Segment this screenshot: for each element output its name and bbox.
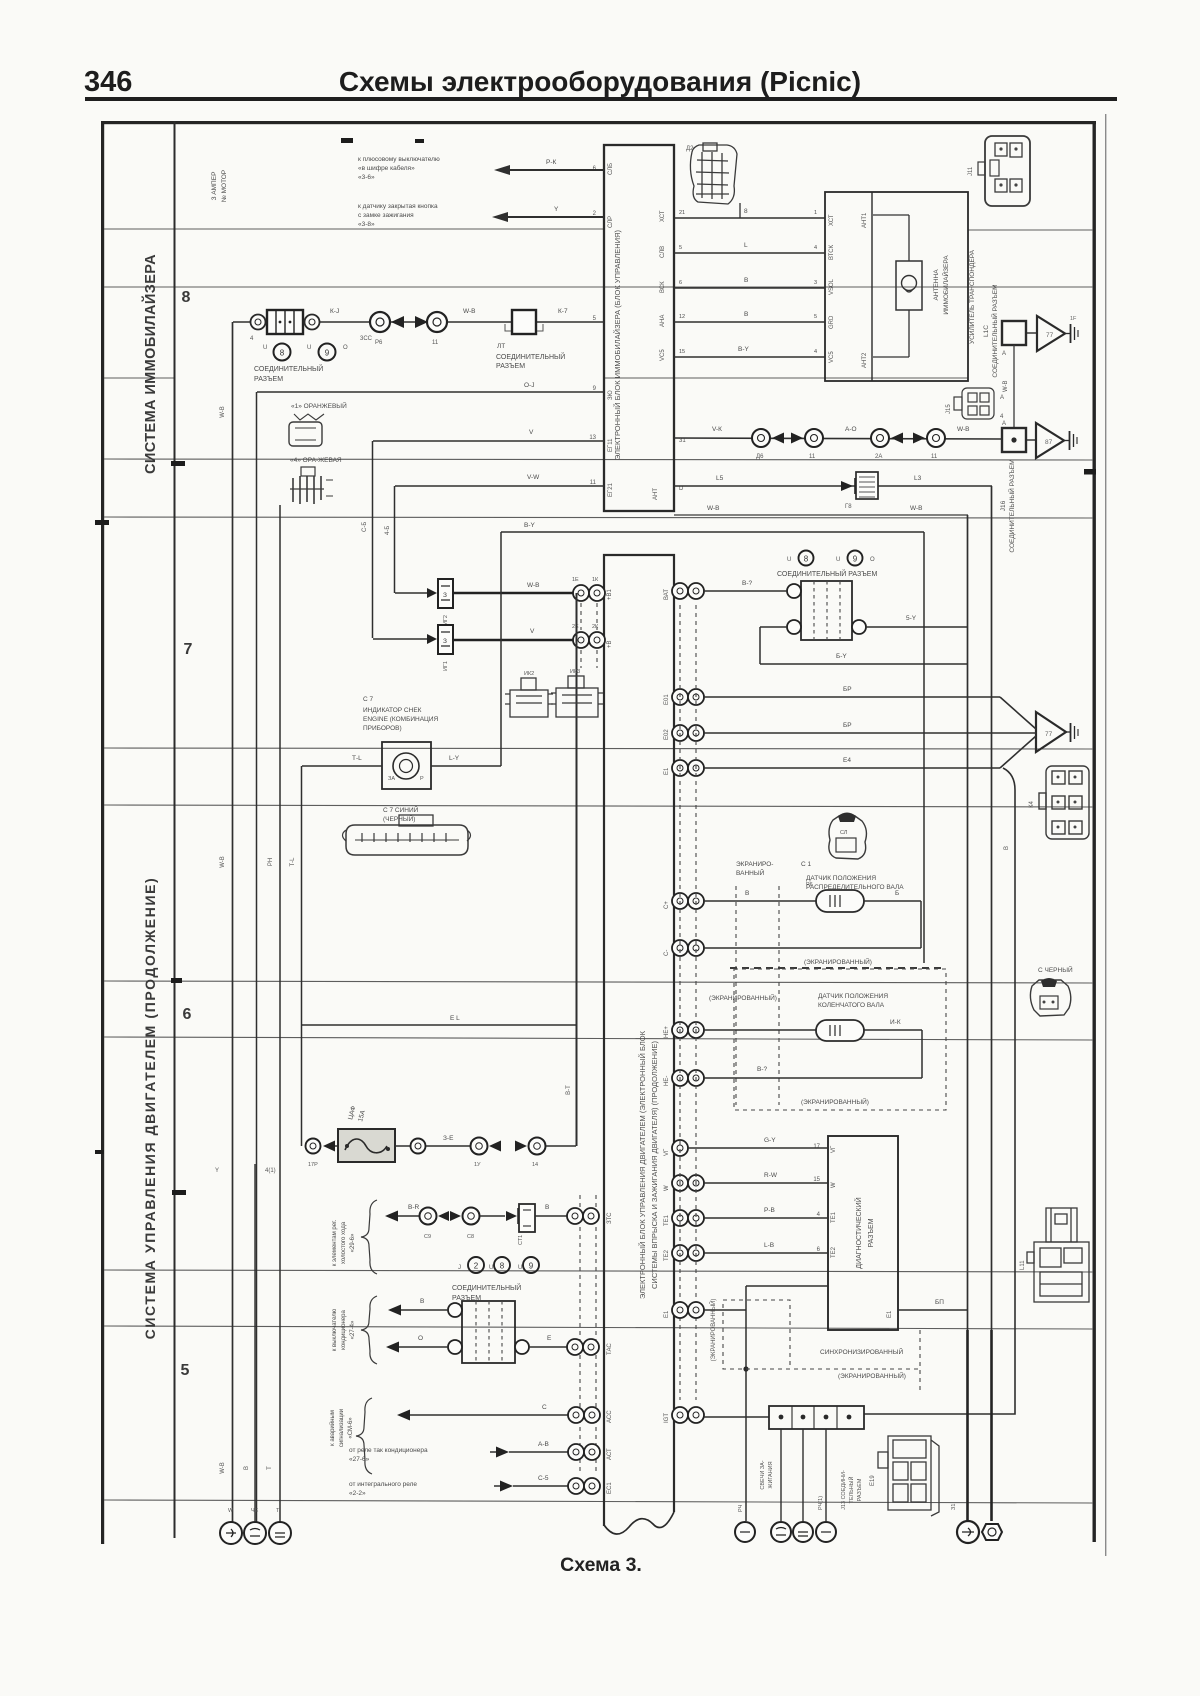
svg-text:W-В: W-В [527,582,540,589]
svg-text:Р: Р [420,776,424,782]
svg-text:U: U [787,557,791,563]
svg-text:№ МОТОР: № МОТОР [221,170,228,202]
svg-text:ПРИБОРОВ): ПРИБОРОВ) [363,725,402,732]
svg-text:ТАС: ТАС [607,1343,613,1355]
svg-text:8: 8 [280,349,285,358]
svg-text:В: В [244,1466,250,1470]
svg-text:ЕС1: ЕС1 [607,1482,613,1494]
svg-text:РАЗЪЕМ: РАЗЪЕМ [496,363,525,370]
svg-text:6: 6 [679,280,682,286]
svg-text:W-B: W-B [220,406,226,418]
svg-text:АНТЕННА: АНТЕННА [933,269,940,301]
svg-text:ЕГ11: ЕГ11 [608,438,614,452]
svg-text:к элементам рег.: к элементам рег. [332,1219,338,1266]
svg-text:L: L [744,242,748,249]
svg-text:И-К: И-К [890,1019,901,1026]
svg-text:ТЕЛЬНЫЙ: ТЕЛЬНЫЙ [847,1476,855,1503]
svg-text:АСС: АСС [607,1410,613,1423]
svg-text:2А: 2А [875,454,882,460]
svg-text:ВАННЫЙ: ВАННЫЙ [736,868,765,877]
svg-text:Р-В: Р-В [764,1207,775,1214]
svg-text:З: З [443,638,447,645]
svg-text:О: О [870,557,875,563]
svg-text:АСТ: АСТ [607,1448,613,1460]
svg-text:РАЗЪЕМ: РАЗЪЕМ [254,376,283,383]
svg-text:(ЭКРАНИРОВАННЫЙ): (ЭКРАНИРОВАННЫЙ) [801,1097,869,1106]
svg-text:V-W: V-W [527,474,540,481]
svg-text:К-J: К-J [330,308,339,315]
svg-text:ДИАГНОСТИЧЕСКИЙ: ДИАГНОСТИЧЕСКИЙ [854,1197,863,1268]
svg-text:J15: J15 [946,404,952,414]
svg-text:СЛР: СЛР [608,216,614,228]
svg-text:77: 77 [1046,332,1054,339]
svg-text:О: О [343,345,348,351]
svg-text:Y: Y [554,206,559,213]
svg-text:W-В: W-В [707,505,720,512]
svg-text:ИГ2: ИГ2 [443,615,449,625]
svg-text:к плюсовому выключателю: к плюсовому выключателю [358,156,440,163]
svg-text:ИК2: ИК2 [524,671,534,677]
svg-text:О: О [418,1335,423,1342]
svg-text:13: 13 [589,435,596,441]
svg-text:ВТСК: ВТСК [829,244,835,260]
svg-text:БП: БП [935,1299,944,1306]
svg-text:Е02: Е02 [664,729,670,740]
svg-text:СОЕДИНИТЕЛЬНЫЙ: СОЕДИНИТЕЛЬНЫЙ [496,352,565,361]
svg-text:З: З [443,592,447,599]
svg-text:ТЕ2: ТЕ2 [831,1246,837,1258]
svg-text:В-?: В-? [742,580,753,587]
svg-text:W-B: W-B [220,1462,226,1474]
svg-text:12: 12 [679,314,685,320]
svg-text:77: 77 [1045,731,1053,738]
svg-text:L5: L5 [716,475,724,482]
svg-text:СИСТЕМА УПРАВЛЕНИЯ ДВИГАТЕЛЕМ: СИСТЕМА УПРАВЛЕНИЯ ДВИГАТЕЛЕМ (ПРОДОЛЖЕН… [142,877,158,1340]
svg-text:к аварийным: к аварийным [329,1410,336,1446]
svg-text:к датчику закрытая кнопка: к датчику закрытая кнопка [358,203,438,210]
svg-text:ИНДИКАТОР СНЕК: ИНДИКАТОР СНЕК [363,707,422,714]
svg-text:С 1: С 1 [801,861,812,868]
svg-text:11: 11 [809,454,816,460]
svg-text:W-B: W-B [1003,380,1009,392]
svg-text:Т: Т [267,1466,273,1470]
svg-text:5: 5 [679,245,682,251]
svg-text:4(1): 4(1) [265,1168,276,1174]
svg-text:J11: J11 [968,166,974,176]
svg-text:НЕ+: НЕ+ [664,1026,670,1038]
svg-text:21: 21 [679,210,685,216]
svg-text:от реле так кондиционера: от реле так кондиционера [349,1447,428,1454]
svg-text:3СС: 3СС [360,336,373,342]
svg-text:VC5: VC5 [829,351,835,363]
svg-text:В-Y: В-Y [524,522,536,529]
svg-text:С-: С- [664,950,670,956]
svg-text:ЗА: ЗА [388,776,395,782]
svg-text:ТЕ2: ТЕ2 [664,1249,670,1261]
svg-text:(ЭКРАНИРОВАННЫЙ): (ЭКРАНИРОВАННЫЙ) [838,1371,906,1380]
svg-text:4: 4 [814,245,817,251]
svg-text:1У: 1У [474,1162,481,1168]
svg-text:Б-Y: Б-Y [836,653,847,660]
svg-text:А: А [1000,395,1004,401]
svg-text:1К: 1К [592,577,599,583]
svg-text:СВЕЧИ ЗА-: СВЕЧИ ЗА- [760,1460,766,1489]
svg-text:АНТ1: АНТ1 [862,212,868,228]
svg-text:С ЧЕРНЫЙ: С ЧЕРНЫЙ [1038,965,1073,974]
svg-text:J: J [458,1265,461,1271]
svg-text:ТЕ1: ТЕ1 [664,1214,670,1226]
svg-text:7: 7 [184,641,193,658]
svg-text:С: С [542,1404,547,1411]
svg-text:О-J: О-J [524,382,534,389]
svg-text:W: W [831,1182,837,1188]
svg-text:ИММОБИЛАЙЗЕРА: ИММОБИЛАЙЗЕРА [941,255,950,315]
svg-text:РЧ(1): РЧ(1) [818,1496,824,1510]
svg-text:«2-2»: «2-2» [349,1490,366,1497]
svg-text:«3-6»: «3-6» [358,174,375,181]
svg-text:Р6: Р6 [375,340,383,346]
svg-text:ENGINE (КОМБИНАЦИЯ: ENGINE (КОМБИНАЦИЯ [363,716,439,723]
svg-text:U: U [307,345,311,351]
svg-text:L11: L11 [1020,1260,1026,1270]
svg-text:В: В [420,1298,424,1305]
svg-text:С 7 СИНИЙ: С 7 СИНИЙ [383,805,419,814]
svg-text:IGТ: IGТ [664,1413,670,1423]
svg-text:17Р: 17Р [308,1162,318,1168]
svg-text:9: 9 [529,1262,534,1271]
svg-text:Д2: Д2 [686,146,694,152]
svg-text:VГ: VГ [831,1145,837,1153]
svg-text:8: 8 [804,555,809,564]
svg-text:U: U [836,557,840,563]
svg-text:U: U [263,345,267,351]
svg-text:холостого хода: холостого хода [341,1221,347,1264]
svg-text:с замке зажигания: с замке зажигания [358,212,414,219]
svg-text:1: 1 [814,210,817,216]
svg-text:ЭКРАНИРО-: ЭКРАНИРО- [736,861,773,868]
svg-text:В: В [744,277,748,284]
svg-text:8: 8 [182,289,191,306]
svg-text:ДАТЧИК ПОЛОЖЕНИЯ: ДАТЧИК ПОЛОЖЕНИЯ [818,993,888,1000]
svg-text:В-?: В-? [757,1066,768,1073]
svg-text:С+: С+ [664,901,670,909]
svg-text:«СМ-6»: «СМ-6» [348,1417,354,1439]
svg-text:СТ1: СТ1 [518,1235,524,1245]
svg-text:11: 11 [432,340,439,346]
svg-text:15: 15 [813,1177,820,1183]
svg-text:ЖИГАНИЯ: ЖИГАНИЯ [768,1461,774,1488]
svg-text:4: 4 [814,349,817,355]
svg-text:В: В [545,1204,549,1211]
svg-text:Е01: Е01 [664,694,670,705]
svg-text:ЭЛЕКТРОННЫЙ БЛОК ИММОБИЛАЙЗЕРА: ЭЛЕКТРОННЫЙ БЛОК ИММОБИЛАЙЗЕРА (БЛОК УПР… [613,229,622,460]
svg-text:87: 87 [1045,439,1053,446]
svg-text:L3: L3 [914,475,922,482]
svg-text:G-Y: G-Y [764,1137,776,1144]
svg-text:VSOL: VSOL [829,278,835,295]
svg-text:5: 5 [181,1362,190,1379]
svg-text:11: 11 [590,480,597,486]
svg-text:Б: Б [895,890,899,897]
svg-text:СЛБ: СЛБ [608,163,614,175]
svg-text:J16: J16 [1000,500,1007,511]
svg-text:V-К: V-К [712,426,722,433]
svg-text:РЧ: РЧ [738,1504,744,1512]
svg-text:РАЗЪЕМ: РАЗЪЕМ [857,1478,863,1501]
svg-text:ХСТ: ХСТ [660,210,666,222]
svg-text:9: 9 [325,349,330,358]
svg-text:СИСТЕМА ИММОБИЛАЙЗЕРА: СИСТЕМА ИММОБИЛАЙЗЕРА [141,254,159,474]
svg-text:В: В [744,311,748,318]
svg-text:СОЕДИНИТЕЛЬНЫЙ РАЗЪЕМ: СОЕДИНИТЕЛЬНЫЙ РАЗЪЕМ [1007,459,1016,552]
svg-text:Р-К: Р-К [546,159,557,166]
svg-text:ВАТ: ВАТ [664,589,670,600]
svg-text:УСИЛИТЕЛЬ ТРАНСПОНДЕРА: УСИЛИТЕЛЬ ТРАНСПОНДЕРА [969,249,976,344]
svg-text:РАСПРЕДЕЛИТЕЛЬНОГО ВАЛА: РАСПРЕДЕЛИТЕЛЬНОГО ВАЛА [806,884,904,891]
svg-text:+В1: +В1 [607,588,613,600]
svg-text:W-В: W-В [463,308,476,315]
svg-text:«29-6»: «29-6» [350,1233,356,1252]
svg-text:А: А [1002,351,1006,357]
svg-text:L-Y: L-Y [449,755,460,762]
svg-text:В-Т: В-Т [566,1085,572,1095]
svg-text:Схемы электрооборудования (Pic: Схемы электрооборудования (Picnic) [339,66,861,97]
svg-text:5-Y: 5-Y [906,615,917,622]
svg-text:V: V [529,429,534,436]
svg-text:31: 31 [679,438,686,444]
svg-text:W-В: W-В [957,426,970,433]
svg-text:ДАТЧИК ПОЛОЖЕНИЯ: ДАТЧИК ПОЛОЖЕНИЯ [806,875,876,882]
svg-text:(ЭКРАНИРОВАННЫЙ): (ЭКРАНИРОВАННЫЙ) [709,1299,717,1362]
svg-text:СЛ: СЛ [840,830,848,836]
svg-text:W: W [228,1508,234,1514]
svg-text:Е1: Е1 [664,1310,670,1318]
svg-text:ЧЕ: ЧЕ [251,1508,259,1514]
svg-text:ЭЛЕКТРОННЫЙ БЛОК УПРАВЛЕНИЯ ДВ: ЭЛЕКТРОННЫЙ БЛОК УПРАВЛЕНИЯ ДВИГАТЕЛЕМ (… [638,1030,647,1299]
svg-text:«27-4»: «27-4» [350,1320,356,1339]
svg-text:ЗТС: ЗТС [607,1212,613,1224]
svg-text:U: U [518,1265,522,1271]
svg-text:ЛТ: ЛТ [497,343,505,350]
svg-text:1Е: 1Е [572,577,579,583]
svg-text:БР: БР [843,722,852,729]
svg-text:РАЗЪЕМ: РАЗЪЕМ [868,1218,875,1247]
svg-text:«27-6»: «27-6» [349,1456,370,1463]
svg-text:ВСК: ВСК [660,281,666,293]
svg-text:В-R: В-R [408,1204,420,1211]
svg-text:В: В [745,890,749,897]
svg-text:С-5: С-5 [538,1475,549,1482]
svg-text:15: 15 [679,349,685,355]
svg-text:ЗЮ: ЗЮ [608,390,614,400]
svg-text:А-В: А-В [538,1441,549,1448]
svg-text:Т-L: Т-L [352,755,362,762]
svg-text:Е1: Е1 [664,767,670,775]
svg-text:С-Б: С-Б [362,522,368,532]
svg-text:5: 5 [814,314,817,320]
svg-text:к выключателю: к выключателю [332,1308,338,1351]
svg-text:17: 17 [813,1144,820,1150]
svg-text:Схема 3.: Схема 3. [560,1554,642,1576]
svg-text:346: 346 [84,66,132,98]
svg-text:Т-L: Т-L [290,857,296,867]
svg-text:Д6: Д6 [756,454,764,460]
svg-text:W-B: W-B [220,856,226,868]
svg-text:НЕ-: НЕ- [664,1076,670,1086]
svg-text:СОЕДИНИТЕЛЬНЫЙ: СОЕДИНИТЕЛЬНЫЙ [452,1283,521,1292]
svg-text:Е L: Е L [450,1015,460,1022]
svg-text:2: 2 [474,1262,479,1271]
svg-text:от интегрального реле: от интегрального реле [349,1481,417,1488]
svg-text:Е19: Е19 [870,1475,876,1486]
svg-text:СИСТЕМЫ ВПРЫСКА И ЗАЖИГАНИЯ ДВ: СИСТЕМЫ ВПРЫСКА И ЗАЖИГАНИЯ ДВИГАТЕЛЯ) (… [650,1041,659,1289]
svg-text:СЛВ: СЛВ [660,246,666,258]
svg-text:Y: Y [215,1168,219,1174]
svg-text:З-Е: З-Е [443,1135,454,1142]
svg-text:В-Y: В-Y [738,346,750,353]
svg-text:ИГ1: ИГ1 [443,661,449,671]
svg-text:СОЕДИНИТЕЛЬНЫЙ: СОЕДИНИТЕЛЬНЫЙ [254,364,323,373]
svg-text:V: V [530,628,535,635]
svg-text:VC5: VC5 [660,349,666,361]
svg-text:сигнализации: сигнализации [339,1409,345,1447]
svg-text:А: А [1002,421,1006,427]
svg-text:ЕГ21: ЕГ21 [608,482,614,497]
svg-text:СОЕДИНИТЕЛЬНЫЙ РАЗЪЕМ: СОЕДИНИТЕЛЬНЫЙ РАЗЪЕМ [777,569,877,578]
svg-text:GRD: GRD [829,315,835,329]
svg-text:J13 СОЕДИНИ-: J13 СОЕДИНИ- [841,1470,847,1510]
svg-text:АНА: АНА [660,315,666,327]
svg-text:А-О: А-О [845,426,857,433]
svg-text:«в шифре кабеля»: «в шифре кабеля» [358,164,415,172]
svg-text:ХСТ: ХСТ [829,214,835,226]
svg-text:С 7: С 7 [363,696,374,703]
svg-text:L-В: L-В [764,1242,774,1249]
svg-text:Е1: Е1 [887,1310,893,1318]
svg-text:1F: 1F [1070,316,1077,322]
svg-text:АНТ2: АНТ2 [862,352,868,368]
svg-text:СИНХРОНИЗИРОВАННЫЙ: СИНХРОНИЗИРОВАННЫЙ [820,1347,903,1356]
svg-text:СОЕДИНИТЕЛЬНЫЙ РАЗЪЕМ: СОЕДИНИТЕЛЬНЫЙ РАЗЪЕМ [990,284,999,377]
svg-text:D: D [679,486,684,492]
svg-text:VГ: VГ [664,1148,670,1156]
svg-text:БР: БР [843,686,852,693]
svg-text:R-W: R-W [764,1172,778,1179]
svg-text:+В: +В [607,640,613,648]
svg-text:К-7: К-7 [558,308,568,315]
svg-text:ТЕ1: ТЕ1 [831,1211,837,1223]
svg-text:Е: Е [547,1335,552,1342]
svg-text:9: 9 [853,555,858,564]
svg-text:РН: РН [268,858,274,866]
svg-text:Г8: Г8 [845,504,852,510]
svg-text:2К: 2К [592,624,599,630]
svg-text:3: 3 [814,280,817,286]
svg-text:4-Б: 4-Б [385,526,391,535]
svg-text:КОЛЕНЧАТОГО ВАЛА: КОЛЕНЧАТОГО ВАЛА [818,1002,885,1009]
svg-text:З1: З1 [951,1504,957,1510]
svg-text:С8: С8 [467,1234,474,1240]
svg-text:(ЭКРАНИРОВАННЫЙ): (ЭКРАНИРОВАННЫЙ) [804,957,872,966]
svg-text:К4: К4 [1029,801,1035,808]
svg-text:(ЭКРАНИРОВАННЫЙ): (ЭКРАНИРОВАННЫЙ) [709,993,777,1002]
svg-text:8: 8 [744,208,748,215]
svg-text:11: 11 [931,454,938,460]
svg-text:АНТ: АНТ [653,488,659,500]
svg-text:W-В: W-В [910,505,923,512]
svg-text:«4» ОРА-ЖЕВАЯ: «4» ОРА-ЖЕВАЯ [290,457,342,464]
svg-text:З АМПЕР: З АМПЕР [211,172,218,201]
svg-text:8: 8 [500,1262,505,1271]
svg-text:С9: С9 [424,1234,431,1240]
svg-text:Е4: Е4 [843,757,851,764]
svg-text:L1С: L1С [983,325,990,337]
svg-text:В: В [1004,846,1010,850]
svg-text:6: 6 [183,1006,192,1023]
svg-text:кондиционера: кондиционера [341,1310,347,1350]
svg-text:ИК3: ИК3 [570,669,580,675]
svg-text:«3-8»: «3-8» [358,221,375,228]
svg-text:14: 14 [532,1162,538,1168]
svg-text:«1» ОРАНЖЕВЫЙ: «1» ОРАНЖЕВЫЙ [291,401,347,410]
svg-text:U: U [489,1265,493,1271]
svg-text:W: W [664,1185,670,1191]
